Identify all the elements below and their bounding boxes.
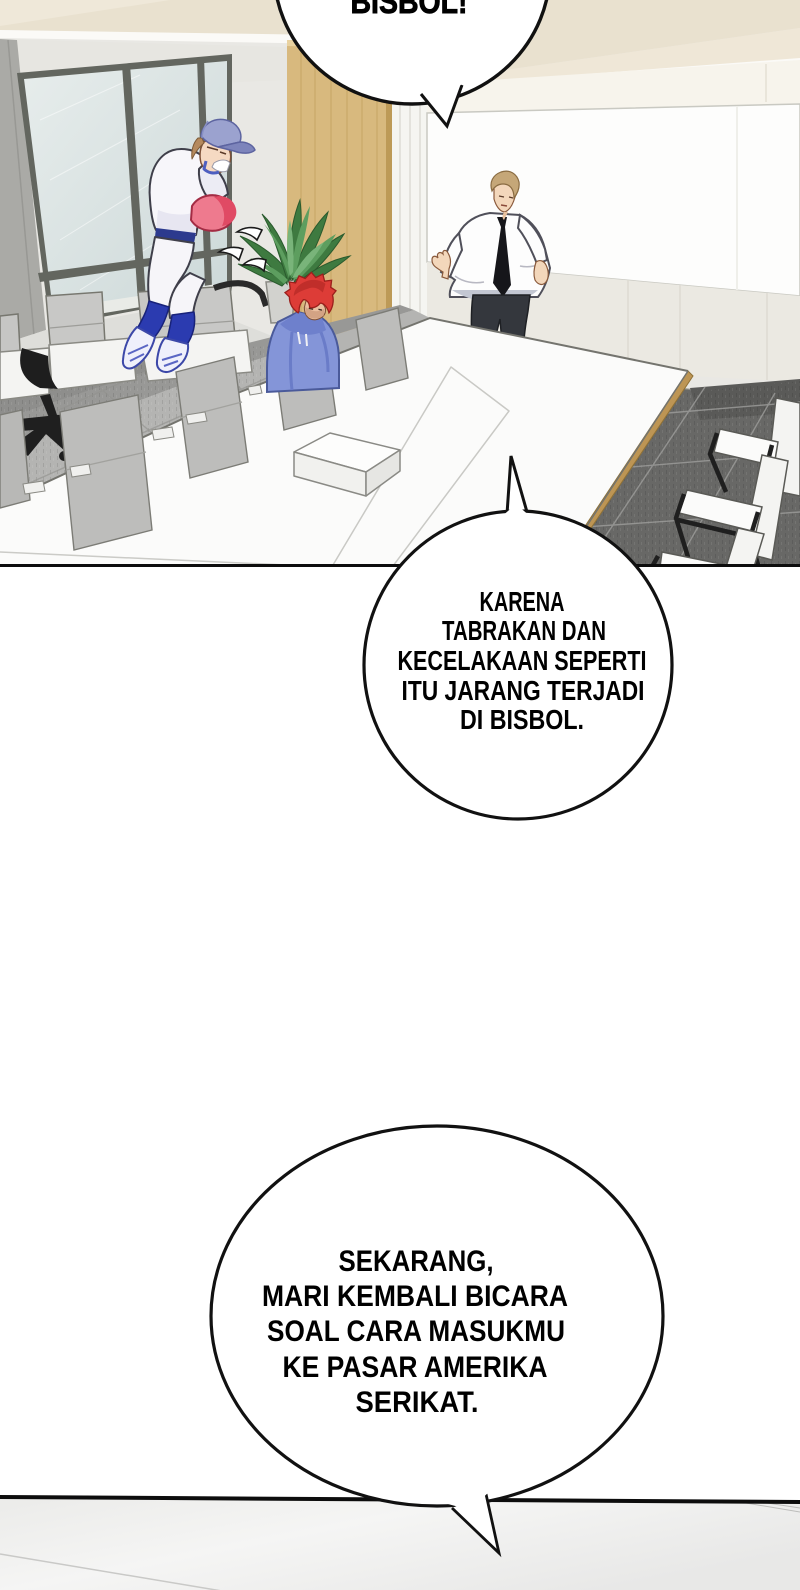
svg-text:DI BISBOL.: DI BISBOL. [460,704,584,735]
svg-text:SEKARANG,: SEKARANG, [339,1245,494,1278]
svg-text:ITU JARANG TERJADI: ITU JARANG TERJADI [402,675,645,706]
svg-text:MARI KEMBALI BICARA: MARI KEMBALI BICARA [262,1280,568,1313]
svg-text:KECELAKAAN SEPERTI: KECELAKAAN SEPERTI [398,645,647,676]
svg-text:SERIKAT.: SERIKAT. [356,1386,479,1419]
svg-text:BISBOL!: BISBOL! [351,0,468,20]
svg-text:TABRAKAN DAN: TABRAKAN DAN [442,615,606,646]
svg-text:KARENA: KARENA [480,586,565,617]
svg-text:KE PASAR AMERIKA: KE PASAR AMERIKA [283,1351,548,1384]
svg-text:SOAL CARA MASUKMU: SOAL CARA MASUKMU [267,1315,565,1348]
